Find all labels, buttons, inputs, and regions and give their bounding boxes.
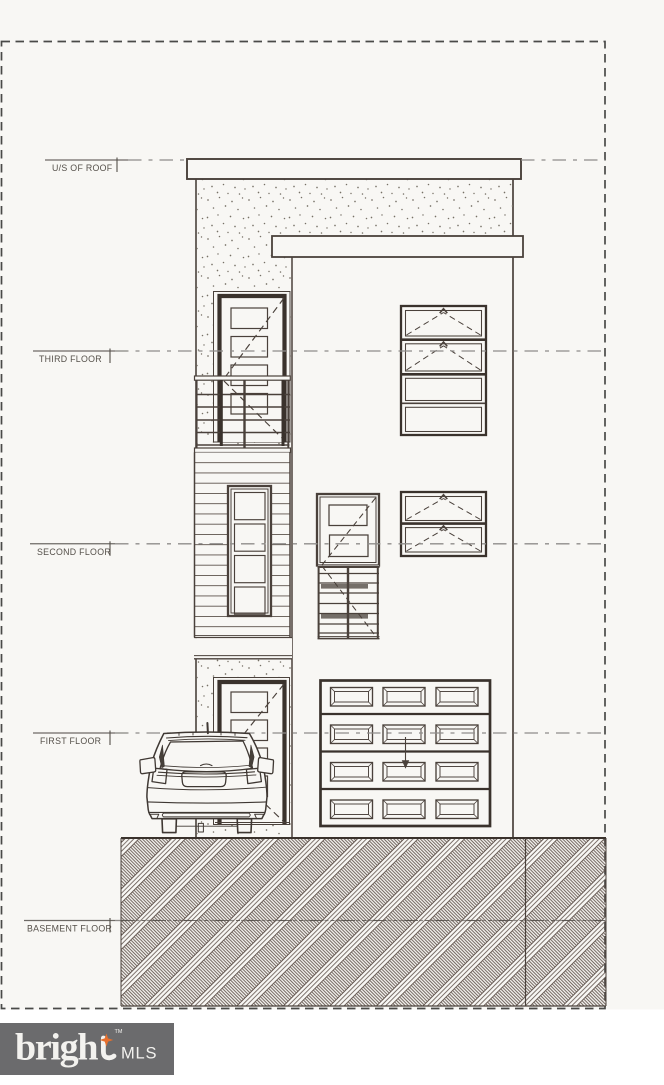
svg-text:MLS: MLS: [121, 1045, 157, 1063]
svg-text:brigh: brigh: [15, 1027, 98, 1069]
svg-text:TM: TM: [115, 1029, 123, 1035]
svg-text:SECOND FLOOR: SECOND FLOOR: [37, 547, 111, 557]
svg-text:THIRD FLOOR: THIRD FLOOR: [39, 354, 102, 364]
svg-text:BASEMENT FLOOR: BASEMENT FLOOR: [27, 924, 112, 934]
svg-text:U/S OF ROOF: U/S OF ROOF: [52, 163, 113, 173]
svg-text:FIRST FLOOR: FIRST FLOOR: [40, 736, 101, 746]
